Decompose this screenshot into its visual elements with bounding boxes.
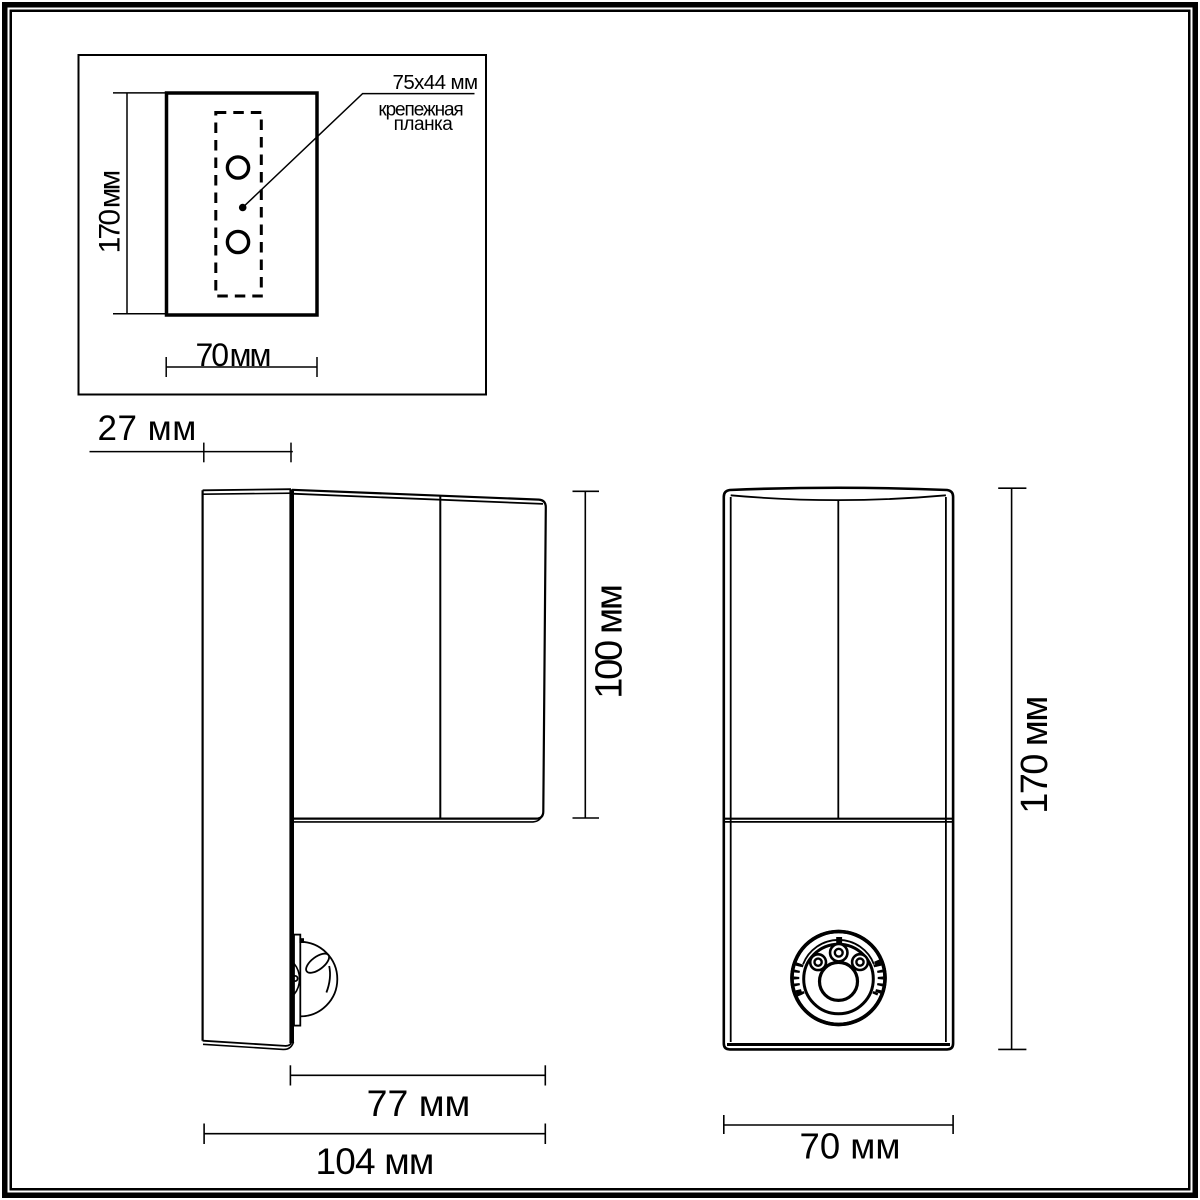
svg-text:планка: планка xyxy=(394,114,454,135)
svg-text:27 мм: 27 мм xyxy=(98,409,197,448)
svg-text:100 мм: 100 мм xyxy=(589,586,631,699)
svg-text:70 мм: 70 мм xyxy=(800,1126,901,1167)
svg-text:77 мм: 77 мм xyxy=(367,1082,471,1124)
svg-text:170мм: 170мм xyxy=(93,171,126,253)
svg-text:104 мм: 104 мм xyxy=(315,1141,433,1182)
svg-text:70мм: 70мм xyxy=(195,337,269,373)
svg-text:170 мм: 170 мм xyxy=(1014,697,1056,814)
svg-text:75x44 мм: 75x44 мм xyxy=(393,71,478,94)
